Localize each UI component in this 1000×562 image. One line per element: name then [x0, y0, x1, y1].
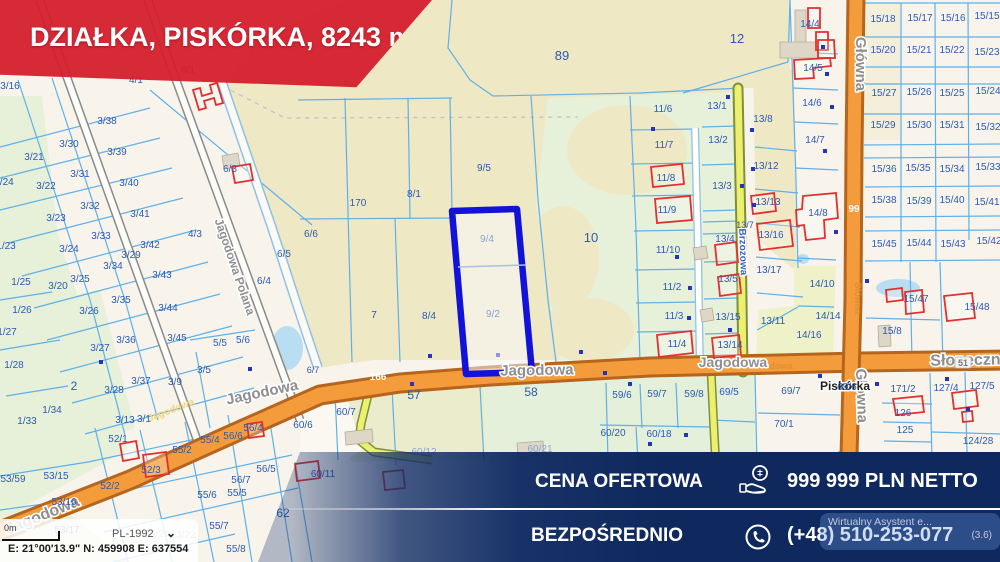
parcel-label: 53/16 [51, 497, 76, 508]
price-value: 999 999 PLN NETTO [787, 470, 978, 493]
parcel-label: 15/24 [975, 86, 1000, 97]
parcel-label: 14/4 [800, 19, 820, 30]
parcel-label: 3/44 [158, 303, 178, 314]
parcel-label: 15/26 [906, 87, 931, 98]
parcel-label: 11/3 [665, 311, 684, 322]
parcel-label: 5/6 [236, 335, 250, 346]
street-label: Główna [852, 37, 869, 92]
building-outline [962, 411, 973, 422]
building-footprint [693, 246, 708, 260]
parcel-label: 3/34 [103, 261, 123, 272]
parcel-label: 13/13 [755, 197, 780, 208]
parcel-label: 3/38 [97, 116, 117, 127]
listing-image: 16699Jagodowa PolanaJagodowaJagodowaJago… [0, 0, 1000, 562]
address-point [651, 127, 655, 131]
address-point [684, 433, 688, 437]
contact-caption: BEZPOŚREDNIO [531, 525, 683, 547]
parcel-label: 6/3 [223, 164, 237, 175]
parcel-label: 13/2 [708, 135, 728, 146]
address-point [865, 279, 869, 283]
parcel-label: 55/7 [209, 521, 229, 532]
parcel-label: 15/15 [974, 11, 999, 22]
parcel-label: 14/5 [803, 63, 823, 74]
address-point [823, 149, 827, 153]
street-label: Jagodowa [699, 354, 768, 370]
parcel-label: 15/29 [870, 120, 895, 131]
parcel-label: 14/8 [808, 208, 828, 219]
road-number-badge: 99 [848, 204, 860, 215]
parcel-label: 3/5 [197, 365, 211, 376]
parcel-label: 3/24 [59, 244, 79, 255]
parcel-label: 3/21 [24, 152, 44, 163]
parcel-label: 59/6 [612, 390, 632, 401]
parcel-label: 13/1 [707, 101, 727, 112]
parcel-label: 9/2 [486, 309, 500, 320]
parcel-label: 13/7 [736, 220, 754, 230]
parcel-label: 15/25 [939, 88, 964, 99]
address-point [740, 184, 744, 188]
parcel-label: 15/8 [882, 326, 902, 337]
parcel-label: 56/4 [243, 423, 263, 434]
parcel-label: 1/25 [11, 277, 31, 288]
parcel-label: 1/26 [12, 305, 32, 316]
parcel-label: 53/15 [43, 471, 68, 482]
address-point [825, 72, 829, 76]
parcel-label: 11/4 [668, 339, 687, 350]
parcel-label: 170 [350, 198, 367, 209]
parcel-label: 13/3 [712, 181, 732, 192]
parcel-label: 1/27 [0, 327, 17, 338]
parcel-label: 3/40 [119, 178, 139, 189]
parcel-label: 3/41 [130, 209, 150, 220]
parcel-label: 69/5 [719, 387, 739, 398]
building-footprint [780, 42, 818, 58]
parcel-label: 3/35 [111, 295, 131, 306]
parcel-label: 69/6 [837, 382, 857, 393]
virtual-assistant-tooltip[interactable]: Wirtualny Asystent e... (3.6) [820, 513, 1000, 550]
scale-bar [2, 531, 60, 541]
parcel-label: 3/33 [91, 231, 111, 242]
parcel-label: 70/1 [774, 419, 794, 430]
parcel-label: 15/44 [906, 238, 931, 249]
parcel-label: 3/31 [70, 169, 90, 180]
banner-divider [285, 508, 1000, 510]
parcel-label: 1/24 [0, 177, 14, 188]
street-label: Główna [853, 282, 863, 315]
land-patch [527, 206, 599, 310]
parcel-label: 3/39 [107, 147, 127, 158]
parcel-label: 15/17 [907, 13, 932, 24]
parcel-label: 12 [730, 31, 744, 46]
address-point [821, 45, 825, 49]
building-footprint [345, 429, 373, 445]
address-point [248, 367, 252, 371]
parcel-label: 89 [555, 48, 569, 63]
parcel-label: 14/6 [802, 98, 822, 109]
parcel-label: 1/28 [4, 360, 24, 371]
parcel-label: 10 [584, 230, 598, 245]
parcel-label: 15/40 [939, 195, 964, 206]
parcel-label: 8/1 [407, 189, 421, 200]
parcel-label: 171/2 [890, 384, 915, 395]
parcel-label: 60/7 [336, 407, 356, 418]
address-point [728, 328, 732, 332]
parcel-label: 52/1 [108, 434, 128, 445]
crs-selector[interactable]: PL-1992 [112, 528, 154, 540]
parcel-label: 15/48 [964, 302, 989, 313]
parcel-label: 55/5 [227, 488, 247, 499]
assistant-version: (3.6) [828, 530, 992, 541]
parcel-label: 1/33 [17, 416, 37, 427]
parcel-label: 15/21 [906, 45, 931, 56]
parcel-label: 57 [407, 388, 421, 402]
parcel-label: 13/4 [715, 234, 735, 245]
parcel-label: 9/5 [477, 163, 491, 174]
parcel-label: 11/6 [654, 104, 673, 115]
parcel-label: 5/5 [213, 338, 227, 349]
parcel-label: 15/36 [871, 164, 896, 175]
parcel-label: 3/9 [168, 377, 182, 388]
address-point [410, 382, 414, 386]
parcel-label: 15/43 [940, 239, 965, 250]
parcel-label: 3/16 [0, 81, 20, 92]
parcel-label: 69/7 [781, 386, 801, 397]
parcel-label: 15/45 [871, 239, 896, 250]
land-patch [542, 298, 634, 362]
building-outline [818, 40, 835, 58]
parcel-label: 13/5 [718, 274, 738, 285]
parcel-label: 14/10 [809, 279, 834, 290]
parcel-label: 3/23 [46, 213, 66, 224]
address-point [726, 95, 730, 99]
address-point [834, 230, 838, 234]
parcel-label: 3/45 [167, 333, 187, 344]
parcel-label: 13/15 [715, 312, 740, 323]
parcel-label: 15/42 [976, 236, 1000, 247]
parcel-label: 3/20 [48, 281, 68, 292]
parcel-label: 3/43 [152, 270, 172, 281]
parcel-label: 11/7 [655, 140, 674, 151]
address-point [687, 316, 691, 320]
address-point [648, 442, 652, 446]
parcel-label: 6/6 [304, 229, 318, 240]
parcel-label: 56/6 [223, 431, 243, 442]
parcel-label: 15/22 [939, 45, 964, 56]
parcel-label: 53/59 [0, 474, 25, 485]
parcel-label: 11/10 [656, 245, 681, 256]
parcel-label: 56/5 [256, 464, 276, 475]
parcel-label: 15/16 [940, 13, 965, 24]
parcel-label: 60/20 [600, 428, 625, 439]
price-caption: CENA OFERTOWA [535, 471, 703, 493]
address-point [875, 382, 879, 386]
parcel-label: 58 [524, 385, 538, 399]
parcel-label: 55/4 [200, 435, 220, 446]
parcel-label: 124/28 [963, 436, 994, 447]
offer-title: DZIAŁKA, PISKÓRKA, 8243 m² [30, 22, 422, 53]
parcel-label: 15/41 [974, 197, 999, 208]
parcel-label: 2 [71, 379, 78, 393]
parcel-label: 55/2 [172, 445, 192, 456]
parcel-label: 127/4 [933, 383, 958, 394]
parcel-label: 9/4 [480, 234, 494, 245]
parcel-label: 6/5 [277, 249, 291, 260]
parcel-label: 6/7 [307, 365, 320, 375]
parcel-label: 15/30 [906, 120, 931, 131]
parcel-label: 15/47 [903, 294, 928, 305]
parcel-label: 3/32 [80, 201, 100, 212]
parcel-label: 55/6 [197, 490, 217, 501]
parcel-label: 126 [895, 408, 912, 419]
parcel-label: 3/30 [59, 139, 79, 150]
chevron-down-icon[interactable]: ⌄ [166, 526, 176, 540]
address-point [628, 382, 632, 386]
parcel-label: 13/16 [758, 230, 783, 241]
parcel-label: 3/1 [137, 414, 151, 425]
parcel-label: 14/16 [796, 330, 821, 341]
address-point [579, 350, 583, 354]
parcel-label: 8/4 [422, 311, 436, 322]
street-label: Jagodowa [500, 361, 574, 379]
parcel-label: 3/26 [79, 306, 99, 317]
building-outline [886, 288, 903, 302]
parcel-label: 13/8 [753, 114, 773, 125]
parcel-label: 59/7 [647, 389, 667, 400]
coordinates-readout: E: 21°00'13.9" N: 459908 E: 637554 [8, 543, 188, 555]
parcel-label: 3/36 [116, 335, 136, 346]
parcel-label: 6/4 [257, 276, 271, 287]
parcel-label: 52/3 [141, 465, 161, 476]
address-point [750, 128, 754, 132]
parcel-label: 13/12 [753, 161, 778, 172]
address-point [99, 360, 103, 364]
parcel-label: 13/17 [756, 265, 781, 276]
street-label: Główna [852, 368, 871, 423]
street-label: Brzozowa [736, 228, 749, 275]
parcel-label: 15/32 [975, 122, 1000, 133]
building-footprint [700, 308, 714, 322]
parcel-label: 3/37 [131, 376, 151, 387]
parcel-label: 15/39 [906, 196, 931, 207]
parcel-label: 3/25 [70, 274, 90, 285]
parcel-label: 56/7 [231, 475, 251, 486]
parcel-label: 127/5 [969, 381, 994, 392]
parcel-label: 4/3 [188, 229, 202, 240]
parcel-label: 1/34 [42, 405, 62, 416]
parcel-label: 13/11 [761, 316, 786, 327]
parcel-label: 3/29 [121, 250, 141, 261]
parcel-label: 60/6 [293, 420, 313, 431]
parcel-label: 3/42 [140, 240, 160, 251]
parcel-label: 55/8 [226, 544, 246, 555]
parcel-label: 14/14 [815, 311, 840, 322]
parcel-label: 7 [371, 310, 377, 321]
address-point [966, 407, 970, 411]
address-point [603, 371, 607, 375]
parcel-label: 11/2 [663, 282, 682, 293]
map-info-bar: 0m PL-1992 ⌄ E: 21°00'13.9" N: 459908 E:… [0, 519, 198, 562]
street-label: dowa [769, 361, 793, 371]
parcel-label: 14/7 [805, 135, 825, 146]
address-point [428, 354, 432, 358]
phone-icon [744, 523, 772, 551]
route-badge-number: 51 [958, 358, 968, 368]
parcel-label: 3/13 [115, 415, 135, 426]
parcel-label: 3/27 [90, 343, 110, 354]
road-number-badge: 166 [370, 372, 387, 383]
parcel-label: 15/31 [939, 120, 964, 131]
parcel-label: 11/8 [657, 173, 676, 184]
parcel-label: 15/27 [871, 88, 896, 99]
parcel-label: 59/8 [684, 389, 704, 400]
parcel-label: 15/35 [905, 163, 930, 174]
parcel-label: 15/33 [975, 162, 1000, 173]
parcel-label: 13/14 [717, 340, 742, 351]
parcel-label: 3/28 [104, 385, 124, 396]
building-outline [715, 242, 738, 265]
parcel-label: 1/23 [0, 241, 16, 252]
assistant-text: Wirtualny Asystent e... [828, 516, 992, 528]
parcel-label: 15/20 [870, 45, 895, 56]
address-point [688, 286, 692, 290]
parcel-label: 52/2 [100, 481, 120, 492]
parcel-label: 11/9 [658, 205, 677, 216]
price-hand-coin-icon [736, 462, 778, 502]
parcel-label: 15/23 [974, 47, 999, 58]
address-point [945, 377, 949, 381]
parcel-label: 15/34 [939, 164, 964, 175]
parcel-label: 15/38 [871, 195, 896, 206]
address-point [818, 374, 822, 378]
parcel-label: 3/22 [36, 181, 56, 192]
parcel-label: 60/18 [646, 429, 671, 440]
parcel-label: 15/18 [870, 14, 895, 25]
address-point [830, 105, 834, 109]
parcel-label: 125 [897, 425, 914, 436]
